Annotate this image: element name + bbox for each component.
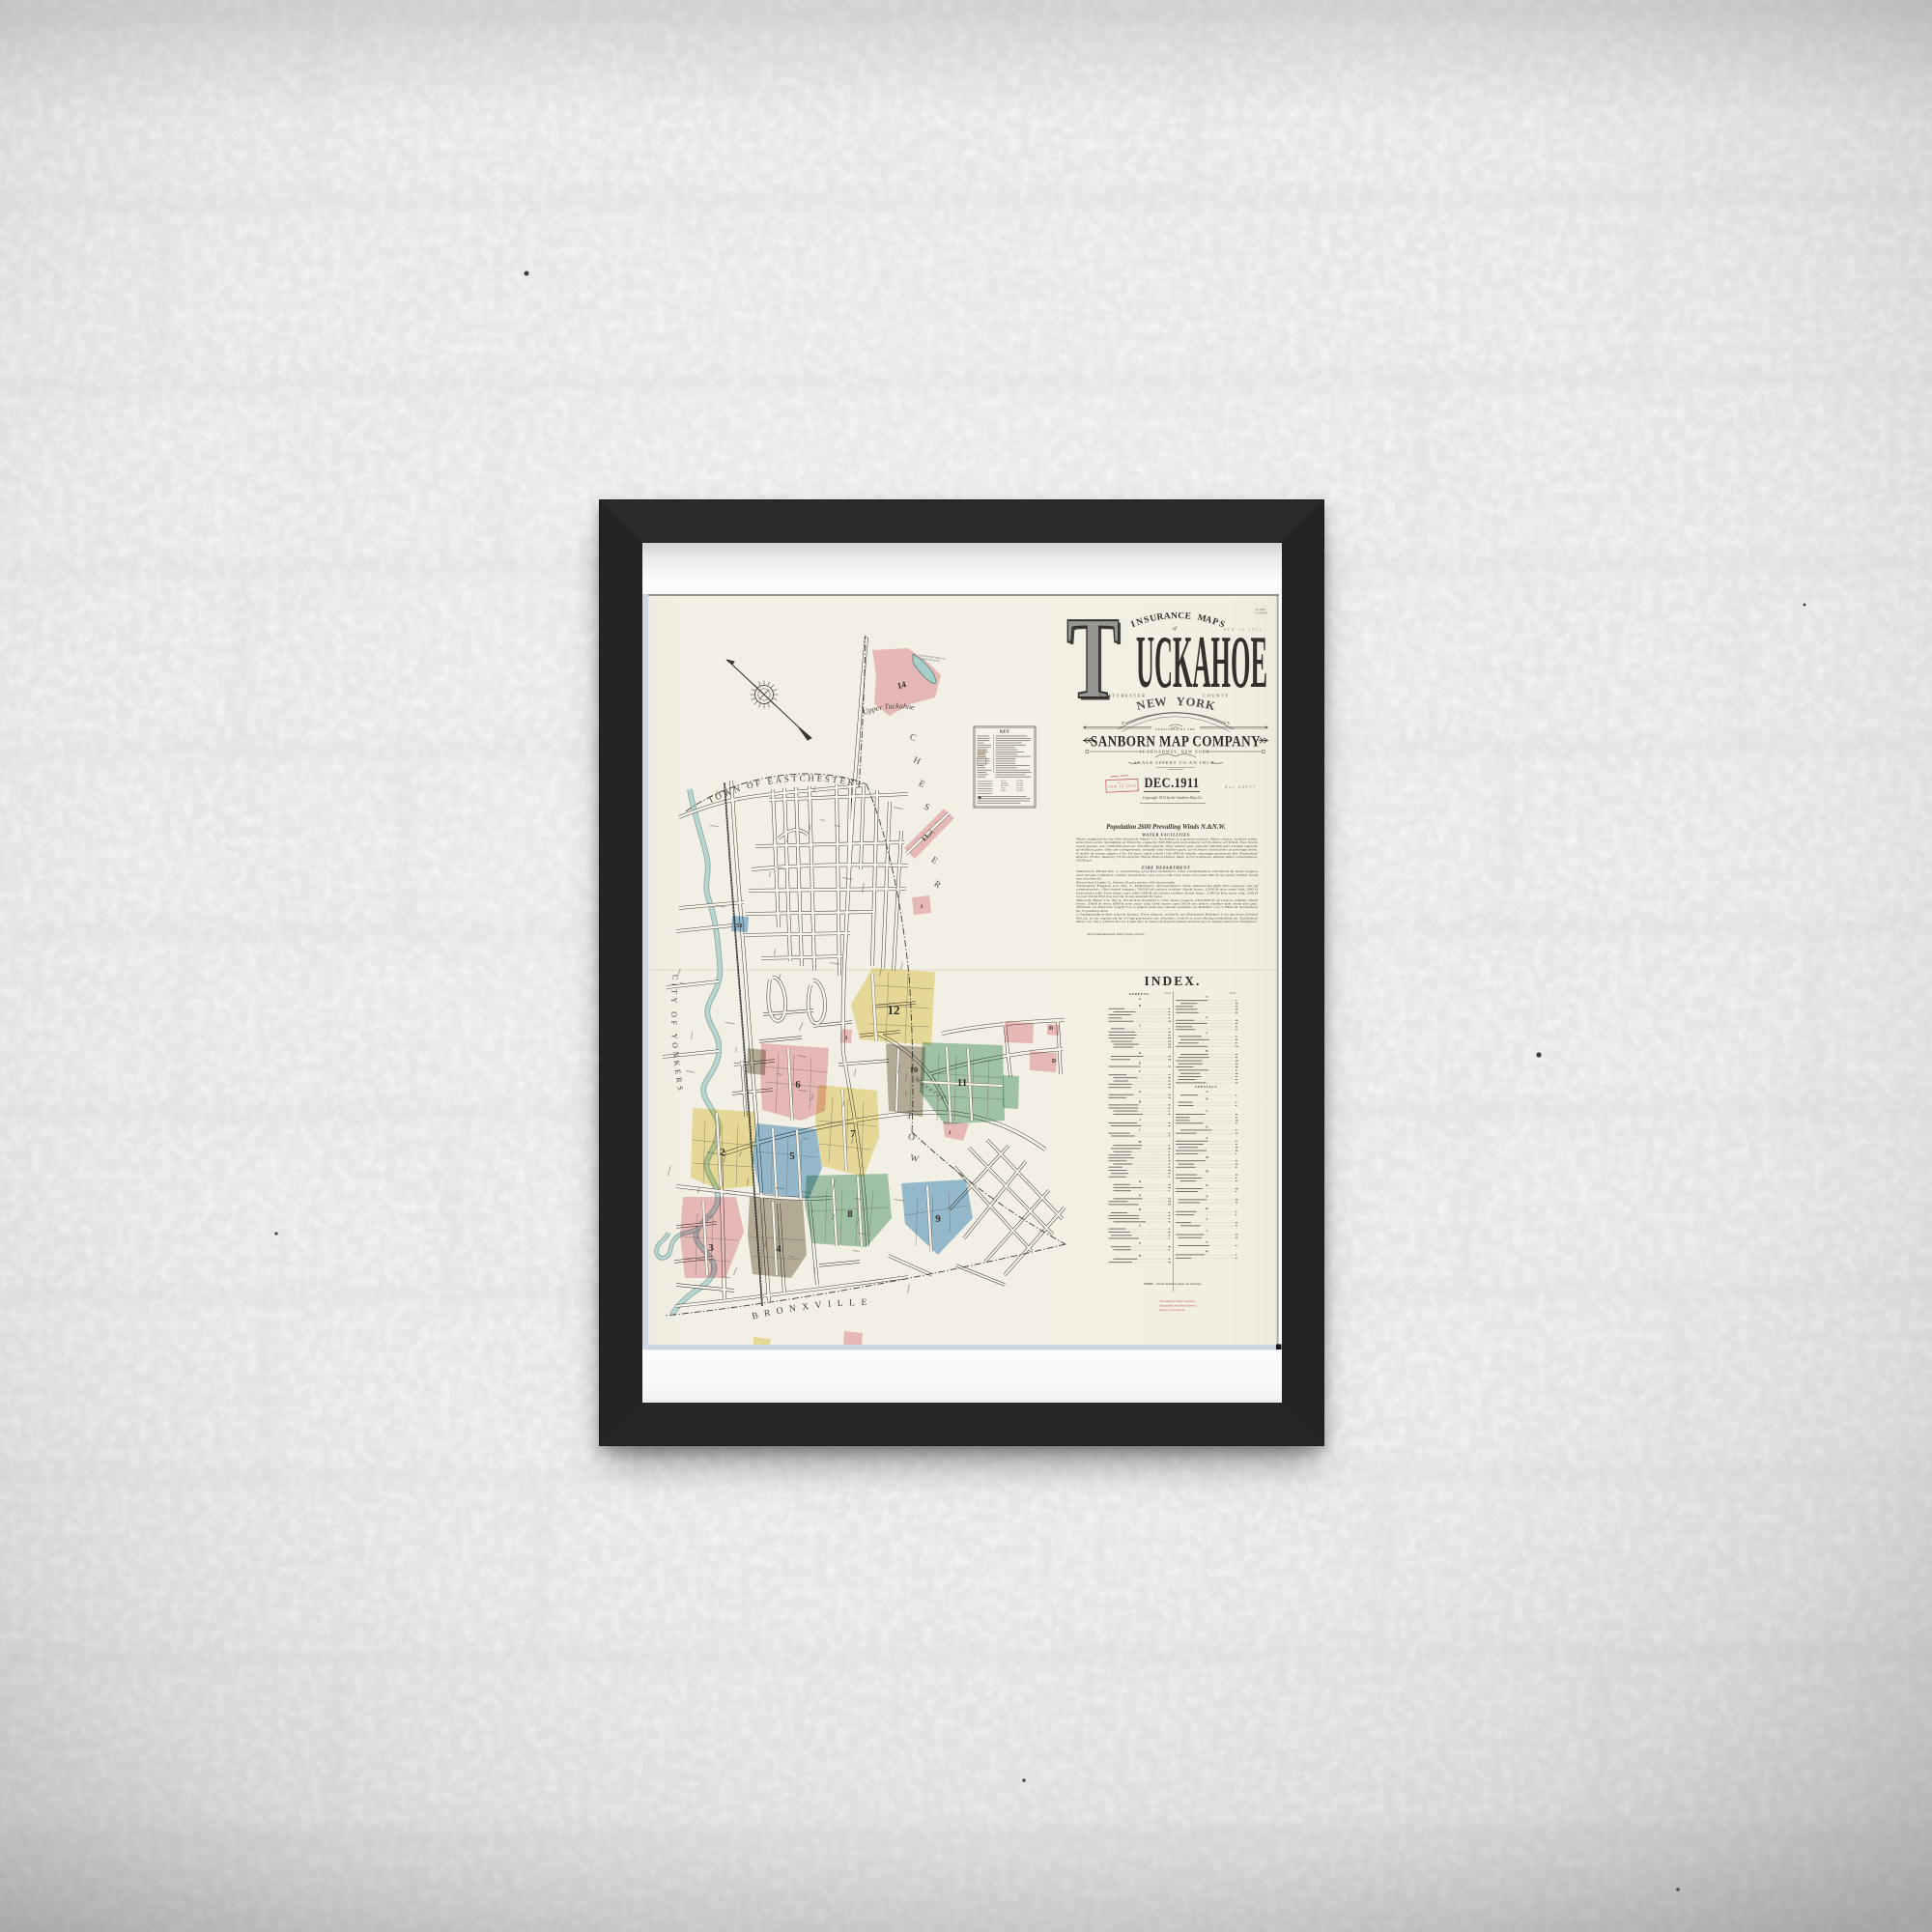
svg-text:WESTCHESTER: WESTCHESTER [1098, 694, 1146, 698]
svg-text:D: D [1049, 1026, 1054, 1032]
svg-text:T: T [1206, 1230, 1207, 1234]
svg-text:Y: Y [1176, 695, 1184, 708]
svg-text:Ear 20577: Ear 20577 [1224, 784, 1257, 789]
svg-text:F: F [1139, 1069, 1141, 1073]
svg-text:SHEET: SHEET [1230, 993, 1236, 995]
svg-text:P: P [1139, 1193, 1141, 1197]
svg-text:F: F [1207, 1136, 1208, 1140]
svg-text:4: 4 [776, 1243, 781, 1255]
svg-text:NOTE.—Street Numbers given are: NOTE.—Street Numbers given are arbitrary… [1144, 1282, 1202, 1286]
svg-text:T: T [1066, 592, 1120, 724]
svg-text:W: W [1139, 1254, 1142, 1258]
svg-text:SCALE 50FEET TO AN INCH.: SCALE 50FEET TO AN INCH. [1134, 760, 1217, 765]
svg-text:B: B [1139, 1004, 1141, 1008]
svg-text:STREETS.: STREETS. [1129, 992, 1151, 996]
svg-text:L: L [1139, 1128, 1141, 1132]
svg-text:DEC.1911: DEC.1911 [1145, 776, 1200, 791]
svg-text:W: W [1206, 1049, 1208, 1053]
svg-text:P: P [1207, 1194, 1208, 1198]
svg-text:INDEX.: INDEX. [1145, 974, 1202, 988]
svg-text:STONE: STONE [1016, 790, 1024, 792]
svg-text:9: 9 [935, 1213, 941, 1225]
svg-text:T: T [1139, 1241, 1141, 1245]
svg-text:C: C [1206, 1109, 1207, 1113]
svg-text:12: 12 [888, 1003, 900, 1017]
svg-text:W: W [1206, 1249, 1208, 1253]
svg-text:51: 51 [736, 923, 743, 929]
svg-text:C: C [1139, 1023, 1141, 1027]
svg-text:UCKAHOE: UCKAHOE [1136, 620, 1267, 703]
svg-text:6: 6 [795, 1079, 801, 1091]
svg-text:8: 8 [847, 1208, 853, 1220]
svg-text:M: M [1206, 1170, 1208, 1174]
svg-text:Hose Co. No.1 (Sheet No.5). L: Hose Co. No.1 (Sheet No.5). Light fire i… [1075, 920, 1259, 923]
svg-text:GRAY: GRAY [1001, 789, 1007, 792]
svg-text:Copyright 1912 by the Sanborn: Copyright 1912 by the Sanborn Map Co. [1143, 796, 1203, 800]
svg-text:D: D [1052, 1059, 1057, 1065]
svg-text:SANBORN MAP COMPANY: SANBORN MAP COMPANY [1091, 734, 1261, 751]
svg-text:PUBLISHED BY THE: PUBLISHED BY THE [1155, 727, 1196, 731]
svg-text:7: 7 [850, 1128, 856, 1140]
svg-text:SHEET: SHEET [1165, 993, 1172, 995]
svg-text:The Sanborn Map Company: The Sanborn Map Company [1159, 1299, 1196, 1303]
svg-text:T: T [1206, 995, 1207, 999]
svg-text:3: 3 [708, 1242, 714, 1254]
svg-text:W: W [1154, 695, 1168, 709]
svg-text:Geography and Map Division: Geography and Map Division [1159, 1303, 1197, 1307]
svg-text:KEY: KEY [1000, 729, 1010, 734]
svg-text:11: 11 [957, 1077, 967, 1089]
svg-text:5: 5 [789, 1151, 795, 1162]
svg-text:B: B [1206, 1097, 1207, 1101]
svg-text:10: 10 [910, 1065, 919, 1074]
svg-text:M: M [1139, 1140, 1142, 1144]
svg-text:Population 2600 Prevailing Wi: Population 2600 Prevailing Winds N.&N.W. [1106, 824, 1226, 831]
svg-text:SPECIALS.: SPECIALS. [1195, 1085, 1219, 1089]
svg-text:Library of Congress: Library of Congress [1159, 1308, 1185, 1312]
svg-text:1-54(650): 1-54(650) [1255, 611, 1267, 615]
svg-text:E: E [1139, 1062, 1141, 1065]
